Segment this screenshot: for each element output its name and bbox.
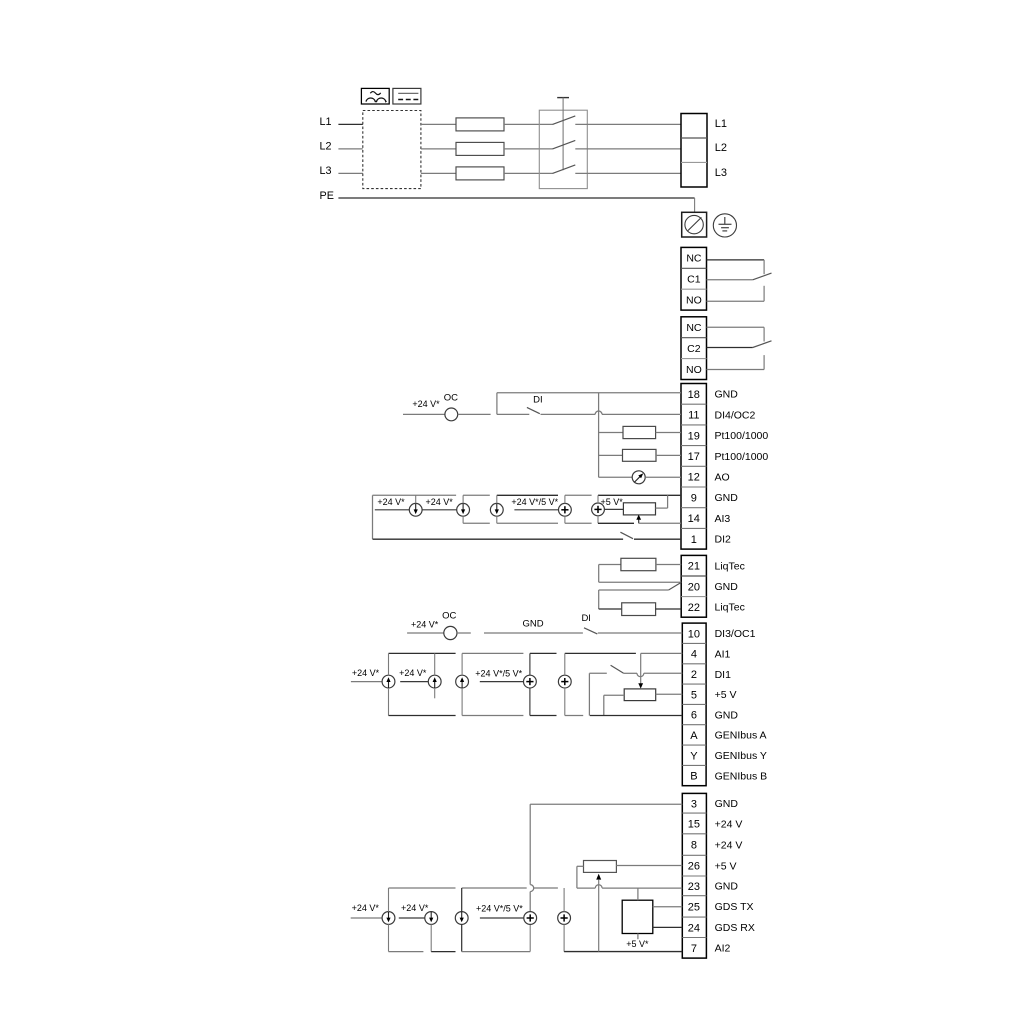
svg-text:+24 V*/5 V*: +24 V*/5 V* [475,668,522,678]
svg-text:L2: L2 [715,142,727,154]
svg-text:GENIbus B: GENIbus B [715,770,768,782]
svg-text:DI: DI [581,613,591,624]
svg-text:7: 7 [691,943,697,955]
svg-text:GND: GND [715,389,739,401]
svg-text:AI1: AI1 [715,648,731,660]
svg-text:19: 19 [688,430,700,442]
svg-text:L1: L1 [320,116,332,128]
svg-text:+24 V*: +24 V* [425,497,453,507]
svg-text:5: 5 [691,689,697,701]
svg-text:NO: NO [686,364,702,376]
svg-text:C2: C2 [687,343,701,355]
svg-text:Pt100/1000: Pt100/1000 [715,430,769,442]
svg-text:DI1: DI1 [715,669,732,681]
svg-text:3: 3 [691,798,697,810]
svg-text:GDS TX: GDS TX [715,901,754,913]
svg-text:C1: C1 [687,274,701,286]
svg-text:24: 24 [688,922,700,934]
svg-text:14: 14 [688,513,700,525]
svg-text:+24 V*/5 V*: +24 V*/5 V* [476,904,523,914]
svg-text:L3: L3 [715,167,727,179]
svg-text:23: 23 [688,881,700,893]
svg-text:GND: GND [715,581,739,593]
svg-text:+24 V*: +24 V* [401,903,429,913]
svg-text:Pt100/1000: Pt100/1000 [715,451,769,463]
svg-text:NC: NC [686,322,702,334]
svg-text:GDS RX: GDS RX [715,922,755,934]
svg-text:+24 V*: +24 V* [377,497,405,507]
svg-text:4: 4 [691,649,697,661]
svg-text:OC: OC [442,611,456,622]
svg-text:DI2: DI2 [715,534,732,546]
svg-text:9: 9 [691,492,697,504]
svg-text:26: 26 [688,861,700,873]
svg-text:20: 20 [688,581,700,593]
svg-text:+24 V*: +24 V* [412,399,440,409]
svg-text:GND: GND [715,709,739,721]
svg-text:+24 V: +24 V [715,818,743,830]
svg-text:+5 V*: +5 V* [601,497,624,507]
svg-text:+24 V*: +24 V* [352,903,380,913]
svg-text:DI4/OC2: DI4/OC2 [715,409,756,421]
svg-text:+5 V: +5 V [715,861,737,873]
svg-text:LiqTec: LiqTec [715,561,745,573]
svg-text:22: 22 [688,602,700,614]
svg-text:AO: AO [715,472,730,484]
svg-text:10: 10 [688,628,700,640]
svg-text:+24 V: +24 V [715,839,743,851]
svg-text:11: 11 [688,410,699,422]
svg-text:NC: NC [686,253,702,265]
svg-text:OC: OC [444,392,458,403]
svg-text:DI3/OC1: DI3/OC1 [715,628,756,640]
svg-text:12: 12 [688,472,700,484]
svg-text:1: 1 [691,534,697,546]
svg-text:LiqTec: LiqTec [715,602,745,614]
svg-text:NO: NO [686,294,702,306]
svg-text:L2: L2 [320,140,332,152]
svg-text:25: 25 [688,901,700,913]
svg-text:L3: L3 [320,165,332,177]
svg-text:+24 V*: +24 V* [411,619,439,629]
svg-text:PE: PE [320,190,334,202]
svg-text:+24 V*/5 V*: +24 V*/5 V* [511,497,558,507]
svg-text:21: 21 [688,561,700,573]
svg-text:GND: GND [523,619,544,630]
svg-text:GENIbus A: GENIbus A [715,730,767,742]
svg-text:GND: GND [715,798,739,810]
svg-text:AI3: AI3 [715,513,731,525]
svg-text:+5 V: +5 V [715,689,737,701]
svg-text:15: 15 [688,819,700,831]
svg-text:AI2: AI2 [715,943,731,955]
svg-text:GND: GND [715,492,739,504]
svg-text:8: 8 [691,840,697,852]
svg-text:2: 2 [691,669,697,681]
svg-text:+5 V*: +5 V* [626,939,649,949]
svg-text:GENIbus Y: GENIbus Y [715,750,767,762]
svg-text:18: 18 [688,389,700,401]
svg-text:L1: L1 [715,118,727,130]
svg-text:+24 V*: +24 V* [352,668,380,678]
svg-text:17: 17 [688,451,700,463]
svg-text:Y: Y [690,750,698,762]
svg-text:+24 V*: +24 V* [399,668,427,678]
svg-text:DI: DI [533,394,543,405]
svg-text:6: 6 [691,710,697,722]
svg-text:GND: GND [715,881,739,893]
svg-text:B: B [690,771,697,783]
svg-text:A: A [690,730,698,742]
